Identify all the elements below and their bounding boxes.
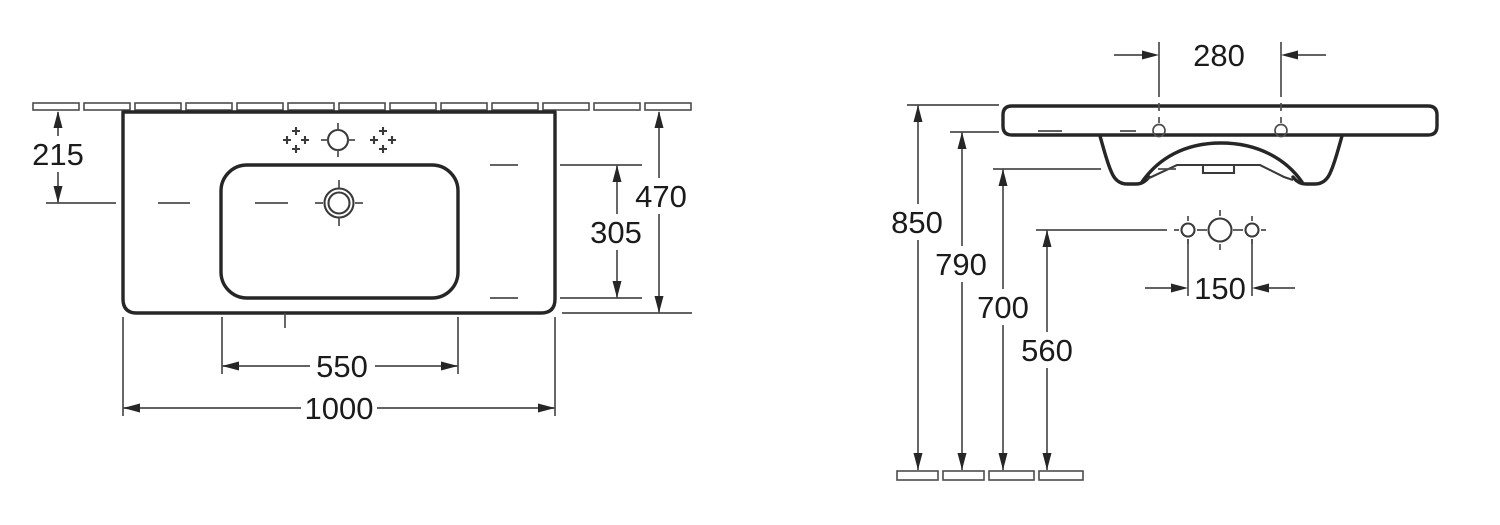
dim-label-550: 550 [316, 349, 368, 384]
floor-hatch [897, 471, 1083, 480]
top-view: 215 470 305 550 [32, 103, 692, 426]
dim-label-1000: 1000 [305, 391, 374, 426]
dim-label-470: 470 [635, 179, 687, 214]
front-view: 280 850 790 700 [891, 38, 1437, 480]
dimension-470: 470 [562, 111, 692, 313]
dim-label-215: 215 [32, 137, 84, 172]
dim-label-790: 790 [935, 247, 987, 282]
dim-label-700: 700 [977, 290, 1029, 325]
dim-label-280: 280 [1193, 38, 1245, 73]
deck-outline [1003, 106, 1437, 135]
technical-drawing-canvas: 215 470 305 550 [0, 0, 1500, 525]
bowl-profile [1100, 136, 1342, 184]
dim-label-305: 305 [590, 215, 642, 250]
dim-label-560: 560 [1021, 333, 1073, 368]
dimension-550: 550 [222, 317, 458, 384]
dimension-700: 700 [977, 169, 1101, 470]
overflow-slot [1203, 165, 1234, 173]
wall-hatch [33, 103, 691, 110]
dimension-850: 850 [891, 105, 999, 470]
dimension-560: 560 [1021, 230, 1167, 470]
dimension-305: 305 [560, 165, 642, 298]
dim-label-850: 850 [891, 205, 943, 240]
dimension-215: 215 [32, 111, 84, 203]
washbasin-dimension-drawing: 215 470 305 550 [0, 0, 1500, 525]
dim-label-150: 150 [1194, 271, 1246, 306]
